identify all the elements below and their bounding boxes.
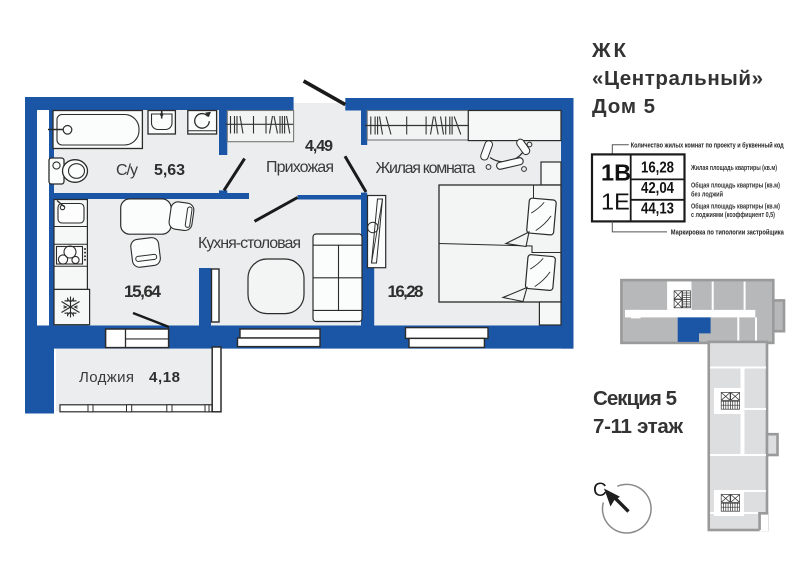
svg-text:4,49: 4,49 xyxy=(305,138,333,155)
svg-text:ЖК: ЖК xyxy=(591,39,626,62)
svg-text:4,18: 4,18 xyxy=(149,369,180,386)
svg-text:С: С xyxy=(593,480,607,501)
svg-text:Прихожая: Прихожая xyxy=(266,159,334,176)
svg-text:1В: 1В xyxy=(601,160,631,186)
svg-text:44,13: 44,13 xyxy=(641,201,674,218)
svg-text:Дом 5: Дом 5 xyxy=(592,95,655,118)
svg-text:Жилая комната: Жилая комната xyxy=(376,160,476,177)
svg-text:Лоджия: Лоджия xyxy=(79,369,134,386)
svg-text:«Центральный»: «Центральный» xyxy=(592,67,763,90)
svg-text:16,28: 16,28 xyxy=(388,282,424,301)
svg-text:42,04: 42,04 xyxy=(641,180,674,197)
svg-text:7-11 этаж: 7-11 этаж xyxy=(593,415,683,438)
svg-text:Общая площадь квартиры (кв.м): Общая площадь квартиры (кв.м) xyxy=(691,182,780,190)
svg-text:Общая площадь квартиры (кв.м): Общая площадь квартиры (кв.м) xyxy=(691,203,780,211)
svg-text:С/у: С/у xyxy=(116,162,138,179)
svg-text:1Е: 1Е xyxy=(601,189,630,215)
svg-text:Секция 5: Секция 5 xyxy=(593,387,677,410)
svg-text:16,28: 16,28 xyxy=(641,160,674,177)
svg-text:с лоджиями (коэффициент 0,5): с лоджиями (коэффициент 0,5) xyxy=(691,212,775,219)
svg-text:Количество жилых комнат по про: Количество жилых комнат по проекту и бук… xyxy=(631,142,784,150)
svg-text:Кухня-столовая: Кухня-столовая xyxy=(198,235,301,252)
svg-text:Жилая площадь квартиры (кв.м): Жилая площадь квартиры (кв.м) xyxy=(690,165,777,172)
svg-text:5,63: 5,63 xyxy=(154,162,185,179)
svg-text:Маркировка по типологии застро: Маркировка по типологии застройщика xyxy=(671,229,784,237)
svg-text:без лоджий: без лоджий xyxy=(691,191,723,199)
svg-text:15,64: 15,64 xyxy=(124,282,162,301)
